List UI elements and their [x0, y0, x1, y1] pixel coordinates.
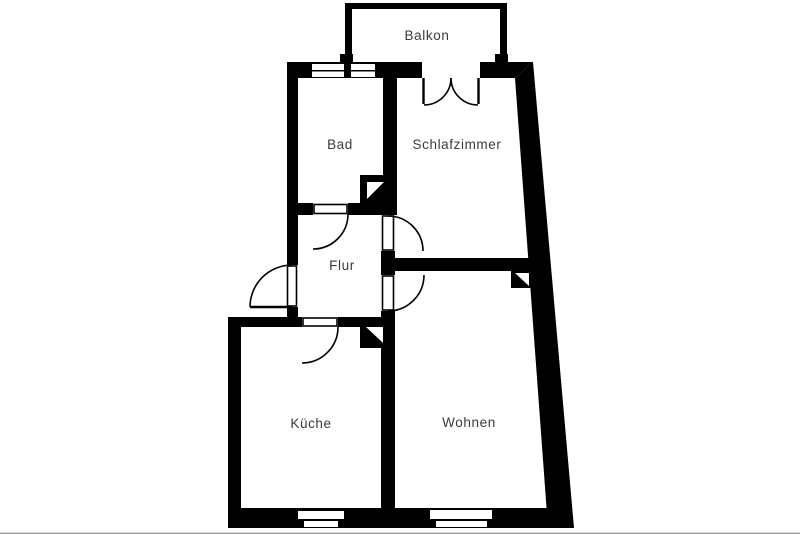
room-label-kueche: Küche	[290, 416, 331, 431]
floorplan-svg: Balkon Bad Schlafzimmer Flur Küche Wohne…	[0, 0, 800, 534]
room-label-bad: Bad	[327, 137, 353, 152]
wohnen-door	[381, 275, 424, 311]
wall-kitchen-left	[228, 317, 241, 512]
wall-kueche-wohnen	[381, 327, 395, 512]
kueche-door	[302, 317, 338, 363]
room-label-schlafzimmer: Schlafzimmer	[413, 137, 502, 152]
wall-bottom	[228, 508, 570, 528]
kueche-duct-icon	[360, 322, 390, 348]
entrance-door	[250, 265, 298, 307]
room-label-flur: Flur	[329, 258, 355, 273]
floorplan-canvas: Balkon Bad Schlafzimmer Flur Küche Wohne…	[0, 0, 800, 534]
bad-door	[313, 203, 348, 249]
bad-duct-icon	[360, 175, 390, 206]
wohnen-wall-duct-icon	[511, 269, 532, 288]
schlafzimmer-door	[381, 215, 423, 251]
outer-walls	[228, 62, 574, 528]
wall-schlafzimmer-wohnen	[395, 258, 531, 271]
kueche-window	[298, 511, 344, 527]
wall-left-upper	[287, 62, 298, 265]
wall-right-slanted	[515, 62, 574, 528]
room-label-balkon: Balkon	[405, 28, 450, 43]
wohnen-window	[430, 510, 492, 527]
balcony-door	[422, 62, 480, 105]
room-label-wohnen: Wohnen	[442, 415, 496, 430]
bad-window	[312, 62, 375, 78]
